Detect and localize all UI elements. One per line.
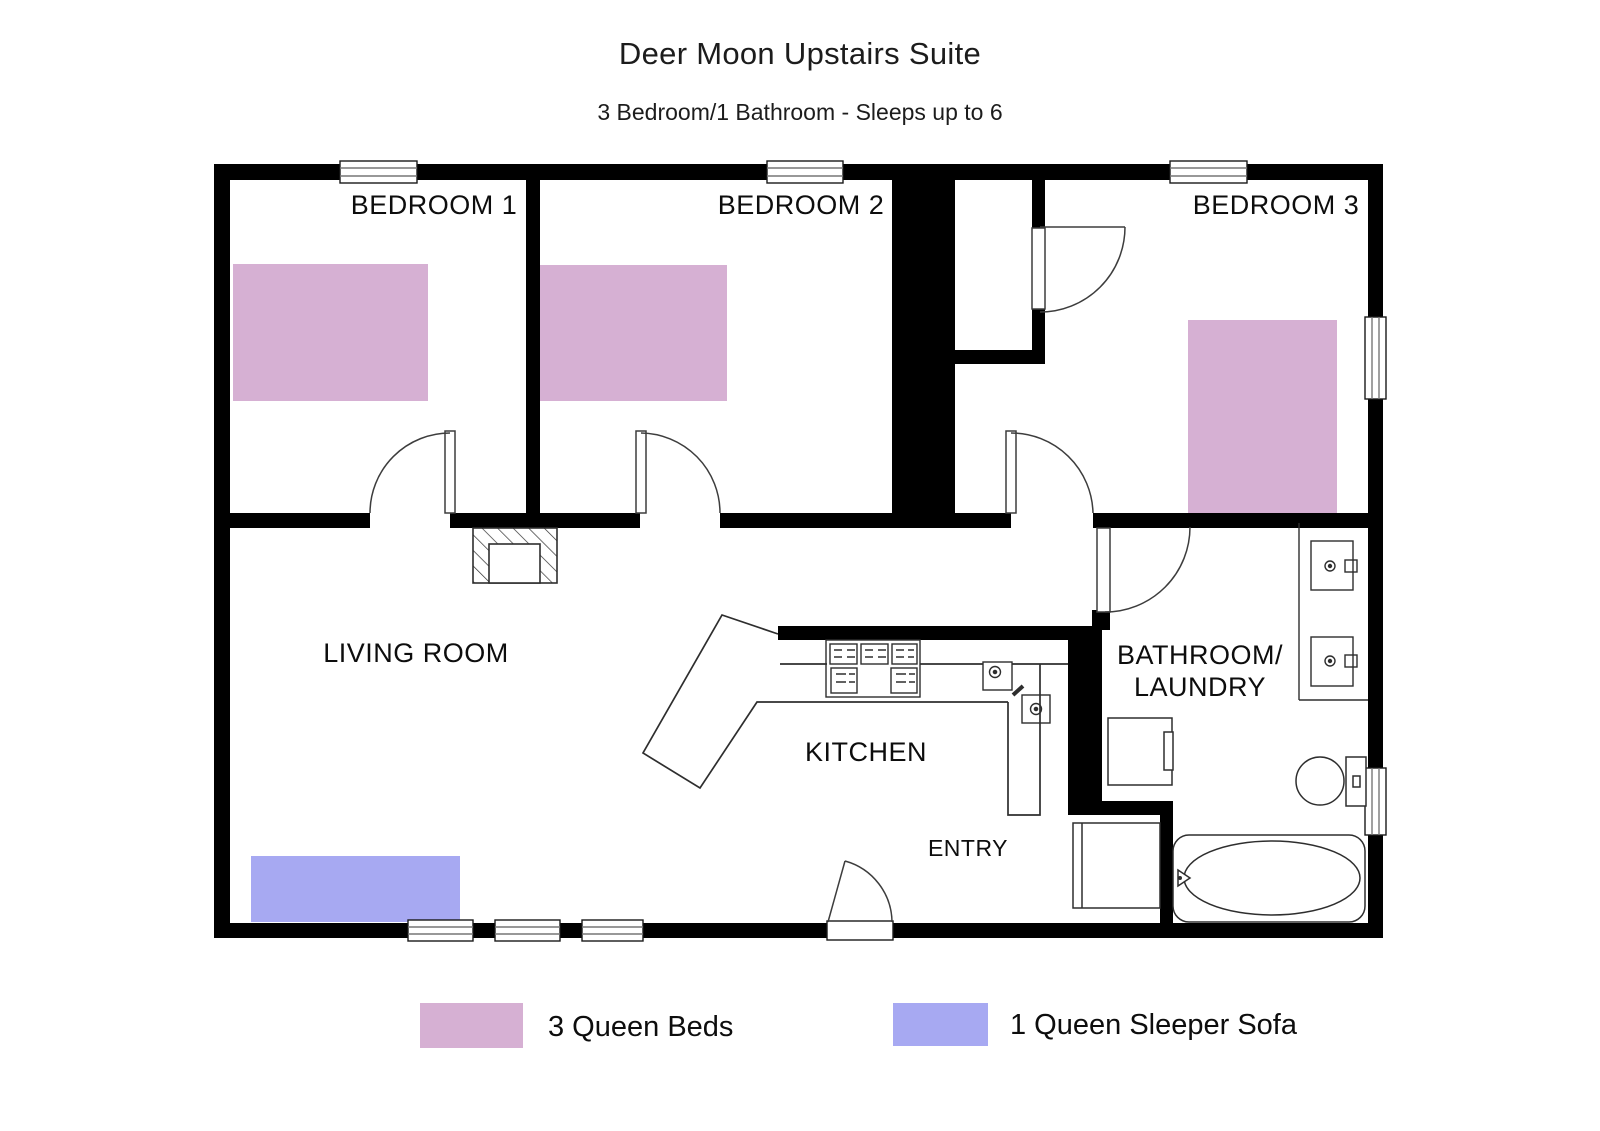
washer [1108,718,1173,785]
stove [826,640,920,697]
wall-kitchen-bath [1068,626,1102,814]
label-bedroom1: BEDROOM 1 [351,190,518,220]
door-closet-bedroom3 [1032,227,1125,312]
toilet [1296,757,1366,806]
wall-left [214,164,230,938]
window-living-2 [495,920,560,941]
wall-closet-bottom [955,350,1045,364]
floor-plan-page: Deer Moon Upstairs Suite 3 Bedroom/1 Bat… [0,0,1600,1131]
entry-cabinet [1073,823,1160,908]
wall-entry-horizontal [1068,801,1173,815]
queen-sleeper-sofa [251,856,460,922]
vanity-sink-1 [1311,541,1357,590]
wall-band-seg3 [720,513,892,528]
wall-band-seg4 [955,513,1011,528]
queen-bed-bedroom1 [233,264,428,401]
wall-band-seg2 [450,513,640,528]
legend-swatch-queen-beds [420,1003,523,1048]
floor-plan-svg: BEDROOM 1 BEDROOM 2 BEDROOM 3 LIVING ROO… [0,0,1600,1131]
wall-bedroom1-2 [526,178,540,514]
wall-band-seg5 [1093,513,1368,528]
kitchen-counter [643,615,1068,815]
label-kitchen: KITCHEN [805,737,927,767]
queen-bed-bedroom3 [1188,320,1337,513]
door-bathroom [1097,527,1190,612]
window-bedroom3-top [1170,161,1247,183]
window-living-1 [408,920,473,941]
entry-threshold [827,921,893,940]
door-bedroom1 [370,431,455,513]
vanity-sink-2 [1311,637,1357,686]
window-bedroom3-right [1365,317,1386,399]
wall-closet-right-top [1032,178,1045,230]
window-living-3 [582,920,643,941]
page-title: Deer Moon Upstairs Suite [0,36,1600,72]
fireplace [473,528,557,583]
door-entry [828,861,892,922]
label-living-room: LIVING ROOM [323,638,509,668]
window-bathroom-right [1365,768,1386,835]
legend: 3 Queen Beds 1 Queen Sleeper Sofa [420,1003,1298,1048]
window-bedroom2 [767,161,843,183]
legend-label-queen-beds: 3 Queen Beds [548,1011,733,1043]
legend-label-sleeper-sofa: 1 Queen Sleeper Sofa [1010,1009,1298,1041]
legend-swatch-sleeper-sofa [893,1003,988,1046]
page-subtitle: 3 Bedroom/1 Bathroom - Sleeps up to 6 [0,99,1600,126]
label-entry: ENTRY [928,835,1008,861]
fixtures [473,523,1368,922]
wall-bottom [214,923,1383,938]
wall-entry-vertical [1160,801,1173,930]
bathtub [1173,835,1365,922]
wall-bath-door-stub [1092,610,1110,630]
queen-bed-bedroom2 [540,265,727,401]
bathroom-vanity [1299,523,1368,700]
door-bedroom2 [636,431,720,513]
label-bedroom3: BEDROOM 3 [1193,190,1360,220]
wall-band-seg1 [228,513,370,528]
wall-kitchen-north [778,626,1102,640]
label-bathroom-line2: LAUNDRY [1134,672,1266,702]
window-bedroom1 [340,161,417,183]
wall-chase [892,176,955,528]
label-bathroom-line1: BATHROOM/ [1117,640,1283,670]
label-bedroom2: BEDROOM 2 [718,190,885,220]
door-bedroom3 [1006,431,1093,513]
